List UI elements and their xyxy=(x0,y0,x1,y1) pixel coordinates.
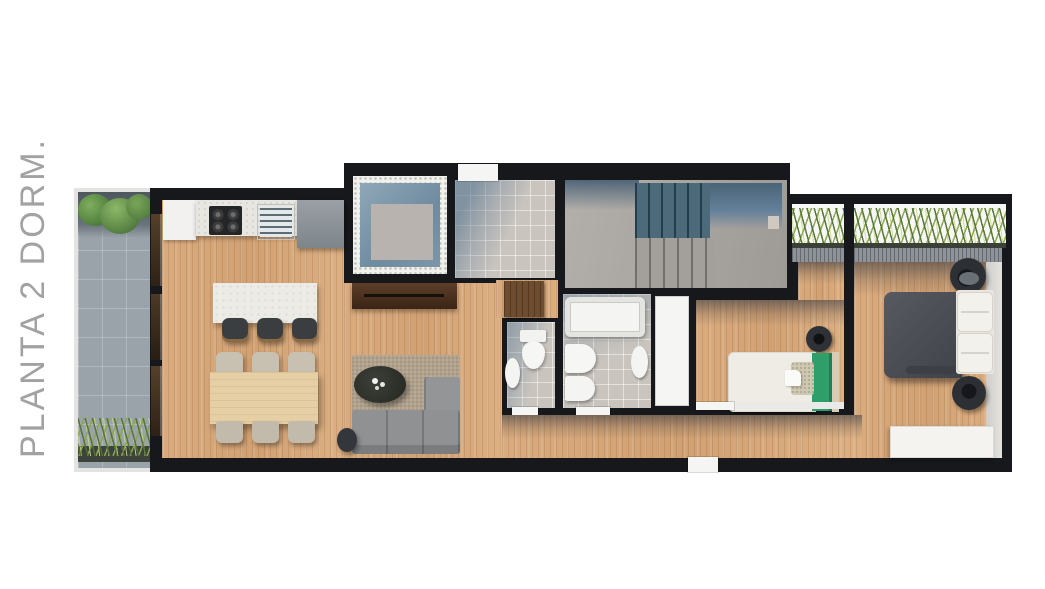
side-table xyxy=(337,428,357,452)
nightstand xyxy=(806,326,832,352)
dining-chair xyxy=(252,421,279,443)
sofa-chaise xyxy=(424,377,460,413)
refrigerator xyxy=(163,200,196,240)
dining-table xyxy=(210,372,318,424)
nightstand xyxy=(950,258,986,294)
toilet xyxy=(565,344,596,373)
bathroom-main xyxy=(563,294,651,408)
planter-grasses xyxy=(854,208,1006,244)
sliding-glass-door xyxy=(151,294,162,360)
planter-deck xyxy=(854,248,1002,262)
table-flowers xyxy=(380,382,385,387)
bedroom-single-door xyxy=(696,402,734,410)
sofa xyxy=(352,410,460,454)
bedroom-wall-face xyxy=(736,402,844,409)
floorplan-canvas: PLANTA 2 DORM. xyxy=(0,0,1045,589)
staircase-room xyxy=(565,180,787,288)
bidet xyxy=(565,376,595,401)
planter-box xyxy=(854,204,1006,248)
tall-cabinet xyxy=(297,200,344,248)
double-bed-duvet xyxy=(884,292,962,378)
bar-stool xyxy=(292,318,317,342)
bathtub xyxy=(565,297,645,337)
dining-chair xyxy=(216,421,243,443)
wall-shadow xyxy=(798,262,844,284)
stair-niche xyxy=(768,216,779,229)
internal-patio xyxy=(353,176,447,274)
kitchen-sink xyxy=(257,204,295,240)
planter-deck xyxy=(792,248,844,262)
bush-plant xyxy=(126,194,152,220)
planter-box xyxy=(792,204,844,248)
stair-shadow xyxy=(565,180,639,210)
exterior-door xyxy=(688,457,718,472)
nightstand xyxy=(952,376,986,410)
washbasin xyxy=(631,346,648,378)
table-flowers xyxy=(372,378,378,384)
dining-chair xyxy=(252,352,279,374)
bed-pillow xyxy=(957,292,993,332)
stove-cooktop xyxy=(209,206,242,235)
tv-screen xyxy=(364,294,444,297)
hall-cabinet xyxy=(504,281,544,317)
tv-console xyxy=(352,283,457,309)
terrace xyxy=(74,188,154,472)
entry-hall xyxy=(455,180,555,278)
plan-title: PLANTA 2 DORM. xyxy=(14,137,53,458)
dining-chair xyxy=(288,421,315,443)
bar-stool xyxy=(222,318,248,342)
wall-notch xyxy=(790,163,1012,194)
planter-grasses xyxy=(792,208,844,244)
sliding-glass-door xyxy=(151,366,162,436)
duvet-fold xyxy=(906,366,962,374)
kitchen-island xyxy=(213,283,317,323)
dining-chair xyxy=(288,352,315,374)
patio-panel xyxy=(371,204,433,260)
grass-plants xyxy=(78,418,150,456)
entry-door xyxy=(458,164,498,181)
dining-chair xyxy=(216,352,243,374)
wall-shadow xyxy=(696,300,844,326)
entry-shadow xyxy=(455,180,555,278)
sliding-glass-door xyxy=(151,214,162,286)
stair-upper-steps xyxy=(635,183,710,238)
single-bed-sheet-fold xyxy=(785,370,801,386)
hallway-shadow xyxy=(502,415,862,439)
nightstand-decor xyxy=(959,272,979,285)
table-flowers xyxy=(375,386,379,390)
coffee-table xyxy=(354,366,406,403)
wardrobe-closet xyxy=(655,296,689,406)
washbasin xyxy=(505,358,520,388)
dresser xyxy=(890,426,994,458)
stair-lower-steps xyxy=(635,238,715,288)
bar-stool xyxy=(257,318,283,342)
wall-notch xyxy=(150,163,344,188)
bed-pillow xyxy=(957,333,993,373)
bathroom-small xyxy=(507,322,555,408)
